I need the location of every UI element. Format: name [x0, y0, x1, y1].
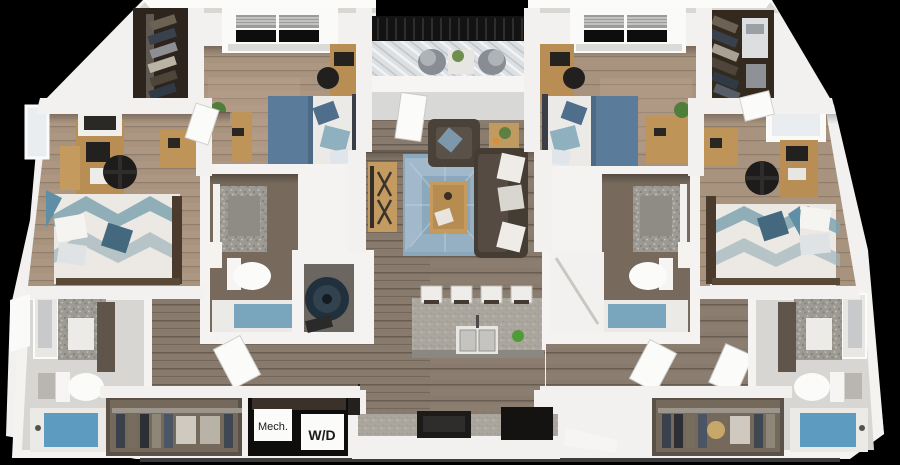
svg-text:Mech.: Mech.: [258, 421, 288, 433]
svg-text:W/D: W/D: [308, 427, 335, 443]
